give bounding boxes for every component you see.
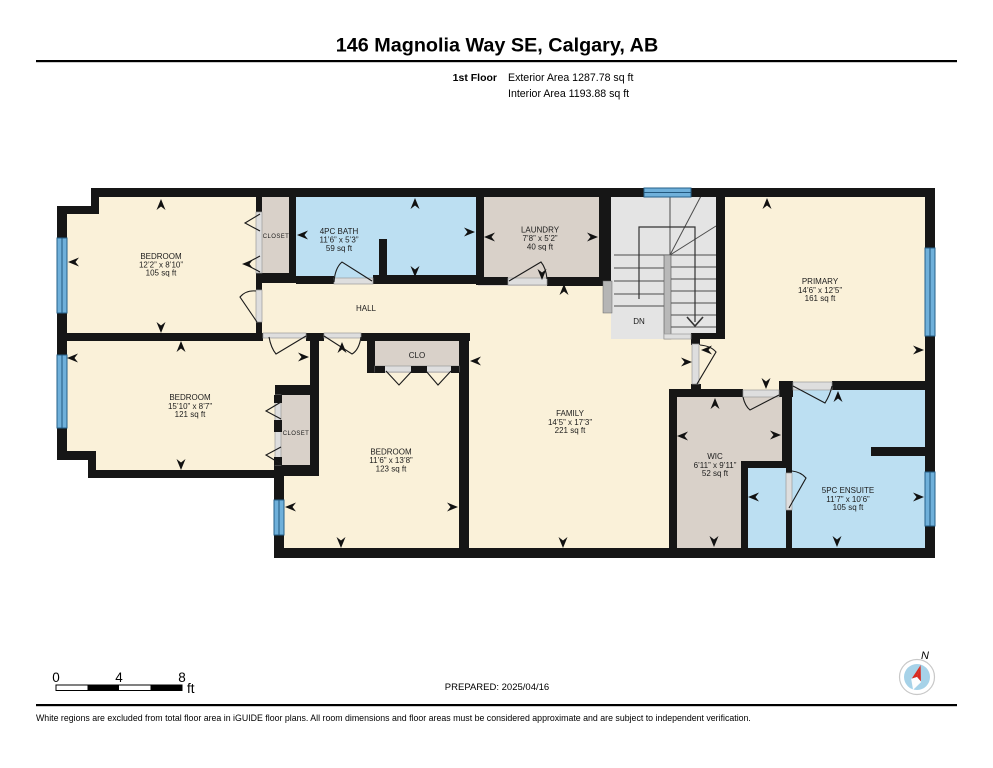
svg-text:CLOSET: CLOSET bbox=[263, 234, 289, 240]
svg-text:HALL: HALL bbox=[356, 304, 377, 313]
svg-text:White regions are excluded fro: White regions are excluded from total fl… bbox=[36, 713, 751, 723]
svg-text:PREPARED: 2025/04/16: PREPARED: 2025/04/16 bbox=[445, 682, 549, 693]
svg-text:FAMILY: FAMILY bbox=[556, 409, 585, 418]
svg-text:Interior Area 1193.88 sq ft: Interior Area 1193.88 sq ft bbox=[508, 88, 629, 100]
svg-text:59 sq ft: 59 sq ft bbox=[326, 244, 353, 253]
svg-text:BEDROOM: BEDROOM bbox=[169, 393, 211, 402]
svg-text:121 sq ft: 121 sq ft bbox=[175, 410, 206, 419]
svg-text:ft: ft bbox=[187, 681, 195, 696]
svg-text:Exterior Area 1287.78 sq ft: Exterior Area 1287.78 sq ft bbox=[508, 72, 633, 84]
svg-text:4: 4 bbox=[115, 670, 123, 685]
svg-text:0: 0 bbox=[52, 670, 60, 685]
svg-text:DN: DN bbox=[633, 317, 645, 326]
svg-text:1st Floor: 1st Floor bbox=[453, 72, 497, 84]
svg-text:N: N bbox=[921, 650, 929, 662]
svg-text:5PC ENSUITE: 5PC ENSUITE bbox=[822, 486, 874, 495]
svg-text:146 Magnolia Way SE, Calgary,: 146 Magnolia Way SE, Calgary, AB bbox=[336, 35, 658, 57]
svg-text:105 sq ft: 105 sq ft bbox=[833, 503, 864, 512]
svg-text:PRIMARY: PRIMARY bbox=[802, 277, 839, 286]
svg-text:123 sq ft: 123 sq ft bbox=[376, 465, 407, 474]
svg-text:161 sq ft: 161 sq ft bbox=[805, 294, 836, 303]
svg-text:52 sq ft: 52 sq ft bbox=[702, 469, 729, 478]
svg-text:221 sq ft: 221 sq ft bbox=[555, 426, 586, 435]
svg-text:8: 8 bbox=[178, 670, 186, 685]
svg-text:CLOSET: CLOSET bbox=[283, 431, 309, 437]
svg-text:105 sq ft: 105 sq ft bbox=[146, 269, 177, 278]
svg-text:CLO: CLO bbox=[409, 351, 425, 360]
svg-text:40 sq ft: 40 sq ft bbox=[527, 243, 554, 252]
svg-text:WIC: WIC bbox=[707, 452, 723, 461]
